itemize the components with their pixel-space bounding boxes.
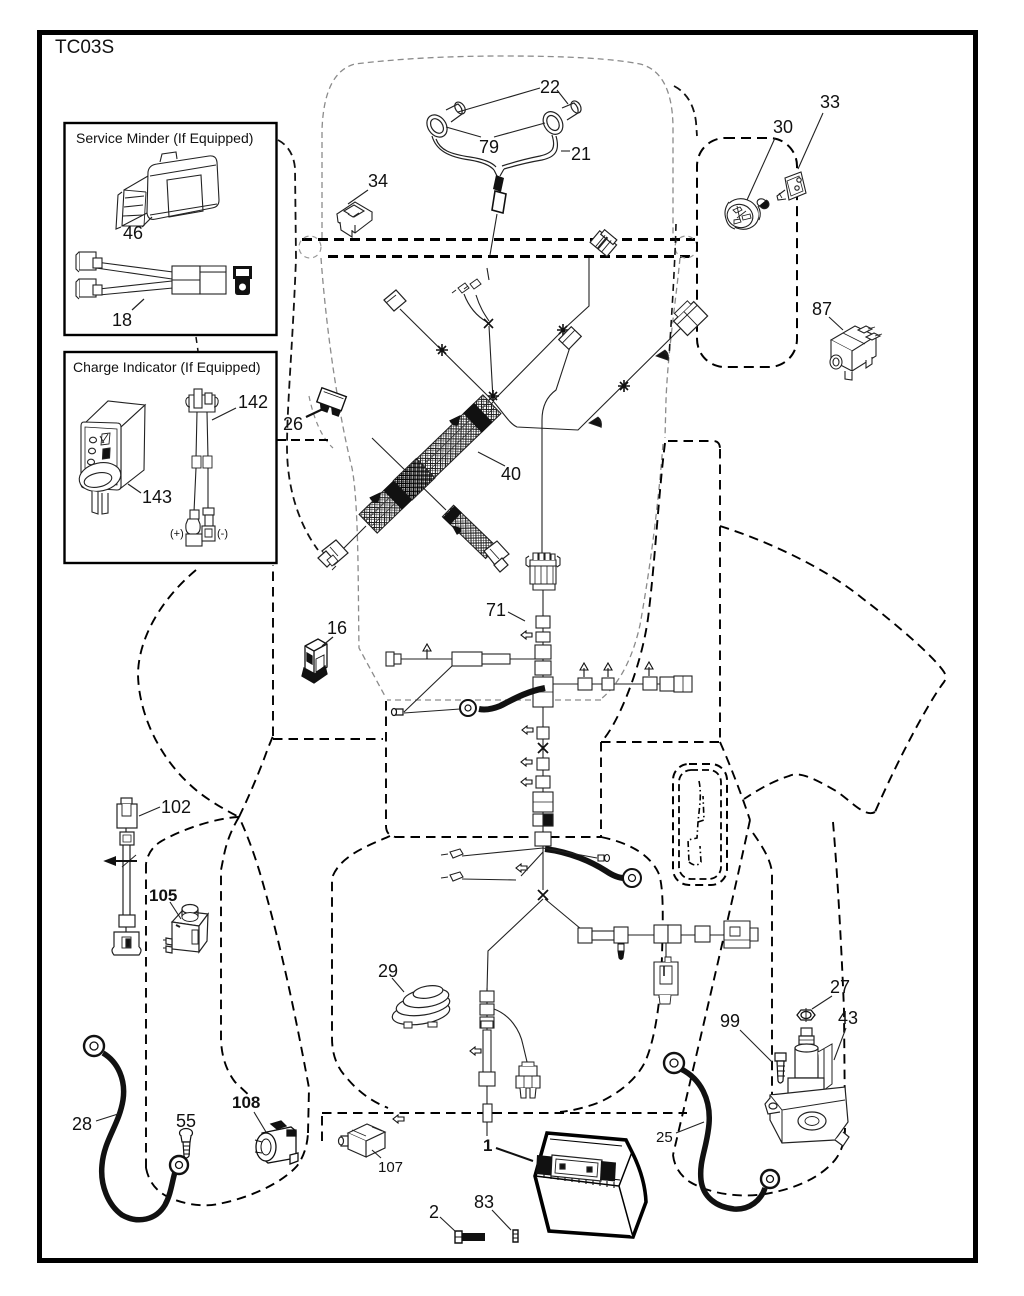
svg-text:34: 34	[368, 171, 388, 191]
svg-text:108: 108	[232, 1093, 260, 1112]
svg-text:105: 105	[149, 886, 177, 905]
svg-text:Charge Indicator (If Equipped): Charge Indicator (If Equipped)	[73, 359, 261, 375]
svg-text:(+): (+)	[170, 528, 184, 540]
svg-text:99: 99	[720, 1011, 740, 1031]
svg-text:143: 143	[142, 487, 172, 507]
svg-text:1: 1	[483, 1136, 492, 1155]
svg-text:27: 27	[830, 977, 850, 997]
svg-text:TC03S: TC03S	[55, 37, 114, 58]
svg-text:71: 71	[486, 600, 506, 620]
svg-text:29: 29	[378, 961, 398, 981]
svg-text:25: 25	[656, 1129, 673, 1146]
svg-text:83: 83	[474, 1192, 494, 1212]
svg-text:26: 26	[283, 414, 303, 434]
svg-text:107: 107	[378, 1159, 403, 1176]
svg-text:2: 2	[429, 1202, 439, 1222]
svg-text:16: 16	[327, 618, 347, 638]
svg-text:40: 40	[501, 464, 521, 484]
svg-text:30: 30	[773, 117, 793, 137]
svg-text:33: 33	[820, 92, 840, 112]
svg-text:55: 55	[176, 1111, 196, 1131]
svg-text:18: 18	[112, 310, 132, 330]
svg-text:Service Minder (If Equipped): Service Minder (If Equipped)	[76, 130, 253, 146]
svg-text:46: 46	[123, 223, 143, 243]
svg-text:28: 28	[72, 1114, 92, 1134]
svg-text:(-): (-)	[217, 528, 228, 540]
svg-text:43: 43	[838, 1008, 858, 1028]
svg-text:142: 142	[238, 392, 268, 412]
svg-text:21: 21	[571, 144, 591, 164]
svg-text:79: 79	[479, 137, 499, 157]
svg-text:87: 87	[812, 299, 832, 319]
svg-text:22: 22	[540, 77, 560, 97]
svg-text:102: 102	[161, 797, 191, 817]
